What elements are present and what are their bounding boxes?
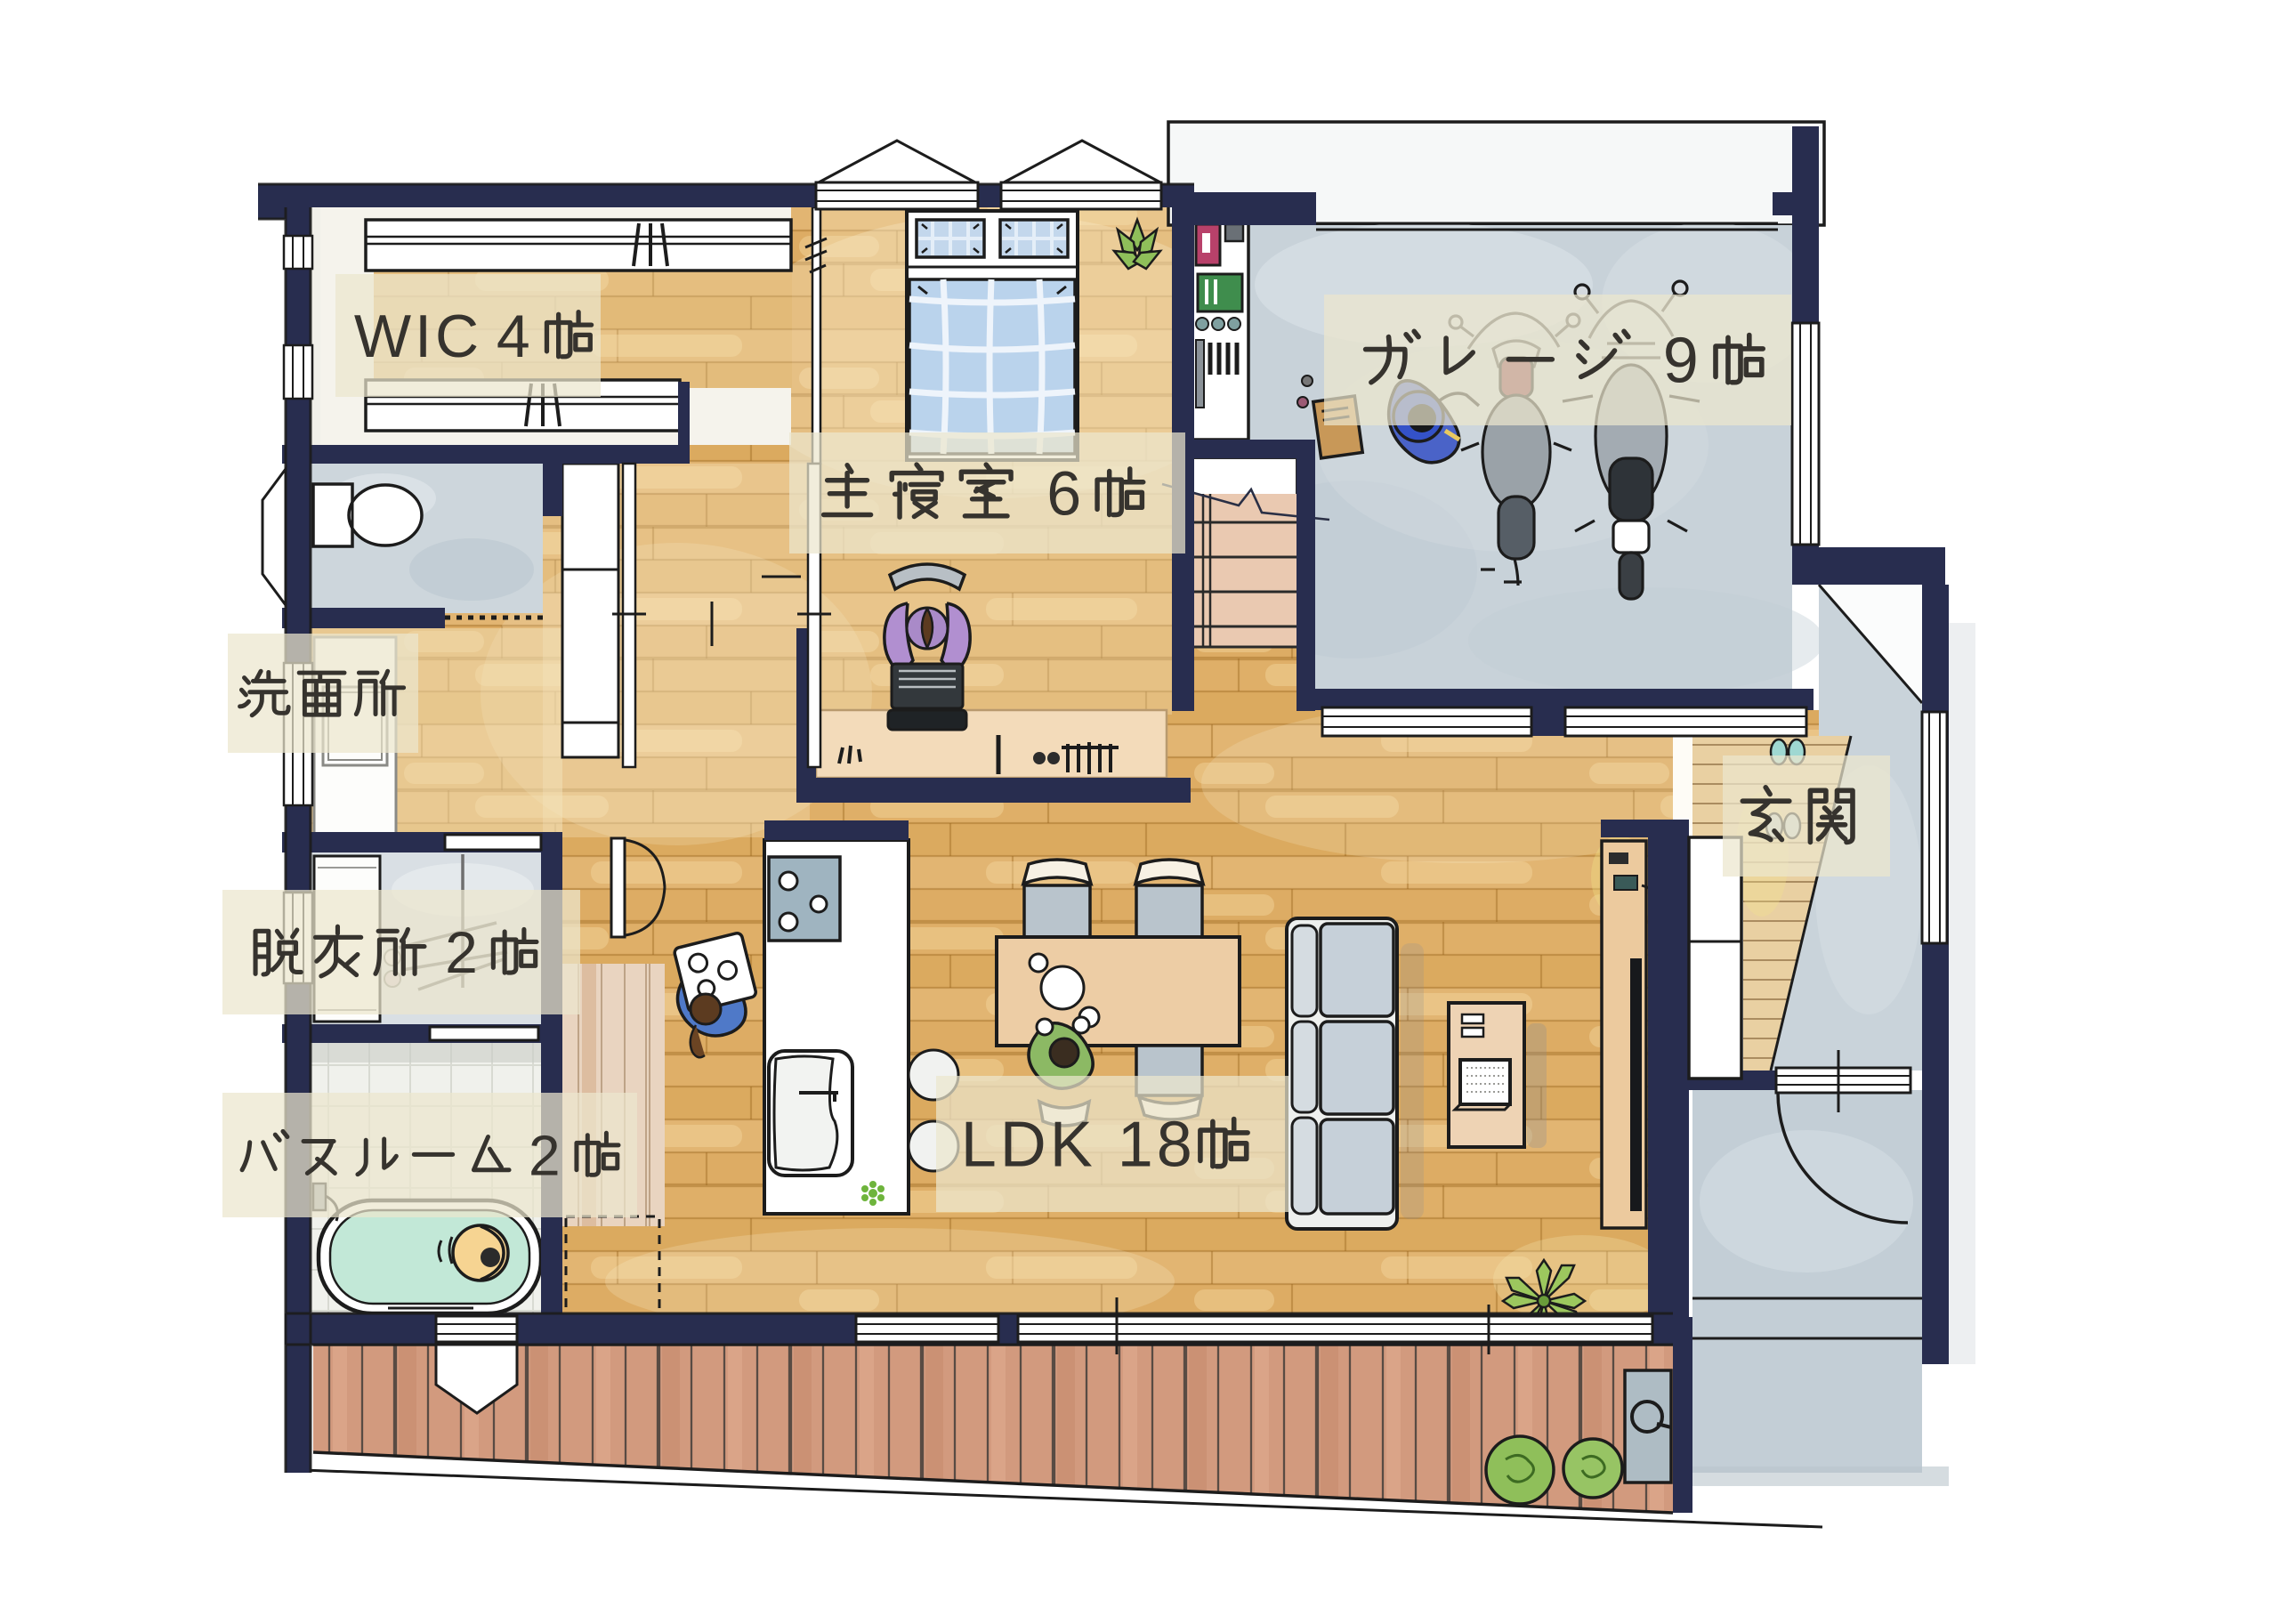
svg-text:WIC: WIC: [354, 303, 482, 370]
svg-text:9: 9: [1663, 326, 1702, 397]
svg-text:LDK: LDK: [961, 1110, 1096, 1181]
svg-text:2: 2: [445, 919, 481, 985]
svg-text:6: 6: [1046, 459, 1085, 529]
svg-text:4: 4: [497, 303, 534, 370]
svg-text:18: 18: [1118, 1110, 1196, 1181]
svg-text:2: 2: [529, 1123, 564, 1187]
